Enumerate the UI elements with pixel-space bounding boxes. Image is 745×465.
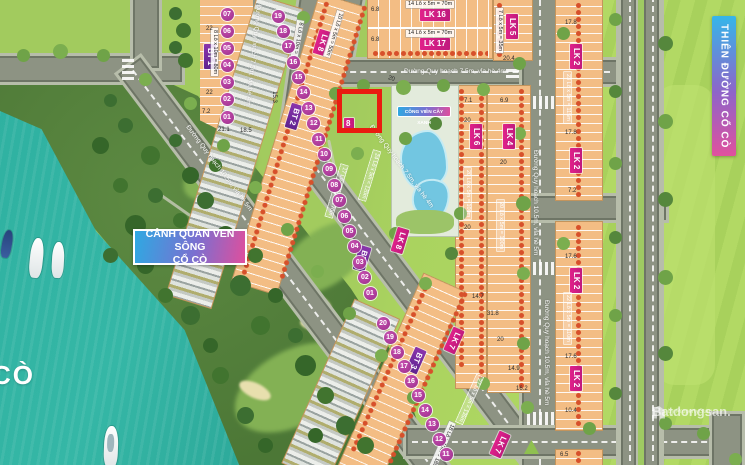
dim-lk6: 20 Lô x 5m = 100m bbox=[464, 168, 471, 219]
lot-markers bbox=[372, 50, 488, 57]
dim-lk4: 20 Lô x 5m = 100m bbox=[497, 200, 504, 251]
block-label-lk4: LK 4 bbox=[503, 124, 515, 149]
block-label-lk16: LK 16 bbox=[420, 9, 450, 21]
street-trees bbox=[0, 0, 11, 11]
block-label-lk2: LK 2 bbox=[570, 268, 582, 293]
dim-lk2-south: 22 Lô x 5m = 110m bbox=[564, 293, 571, 344]
dim-lk5: 7 Lô x 5m = 35m bbox=[496, 8, 503, 53]
master-plan-map: CÒ bbox=[0, 0, 745, 465]
lot-markers bbox=[575, 224, 582, 426]
yacht bbox=[103, 426, 118, 465]
yacht-deck bbox=[107, 434, 115, 452]
block-label-lk2: LK 2 bbox=[570, 44, 582, 69]
block-label-lk2: LK 2 bbox=[570, 366, 582, 391]
green-park-label: CÔNG VIÊN CÂY XANH bbox=[397, 106, 451, 117]
road-name: Đường Quy hoạch 10.5m, vỉa hè 5m bbox=[543, 300, 550, 405]
riverside-landscape-banner: CẢNH QUAN VEN SÔNG CỔ CÒ bbox=[133, 229, 247, 265]
avenue-lane-east bbox=[644, 0, 659, 465]
block-label-lk17: LK 17 bbox=[420, 38, 450, 50]
road-bottom-right-vertical bbox=[714, 416, 740, 465]
grass-patch bbox=[655, 85, 715, 385]
dim-lk17: 14 Lô x 5m = 70m bbox=[406, 30, 454, 37]
crosswalk bbox=[122, 59, 134, 80]
road-name: Đường Quy hoạch 7.5m, vỉa hè 4m bbox=[404, 68, 506, 75]
block-label-lk2: LK 2 bbox=[570, 148, 582, 173]
dim-lk8-mid: 24 Lô x 5m = 120m bbox=[359, 150, 381, 201]
avenue-lane-west bbox=[621, 0, 636, 465]
dim-bt1: 8 Lô x 10m = 80m bbox=[211, 28, 218, 76]
highlighted-lot-box[interactable] bbox=[337, 89, 382, 133]
dim-lk2-north: 23 Lô x 5m = 115m bbox=[564, 72, 571, 123]
paradise-co-co-banner: THIÊN ĐƯỜNG CỔ CÒ bbox=[712, 16, 736, 156]
block-divider bbox=[368, 27, 492, 29]
road-name: Đường Quy hoạch 10.5m, vỉa hè 5m bbox=[532, 150, 539, 255]
lot-number-badge: 14 bbox=[419, 404, 432, 417]
banner-line1: CẢNH QUAN VEN SÔNG bbox=[135, 228, 245, 254]
road-north-stub bbox=[135, 0, 157, 66]
crosswalk bbox=[527, 96, 554, 109]
lot-markers bbox=[458, 88, 465, 368]
crosswalk bbox=[506, 66, 519, 78]
crosswalk bbox=[527, 412, 554, 425]
grand-avenue bbox=[616, 0, 664, 465]
crosswalk bbox=[527, 262, 554, 275]
lot-number-badge: 02 bbox=[358, 271, 371, 284]
lot-markers bbox=[575, 450, 582, 464]
lot-markers bbox=[518, 88, 525, 388]
dim-lk16: 14 Lô x 5m = 70m bbox=[406, 1, 454, 8]
lot-number-badge: 01 bbox=[364, 287, 377, 300]
river-name-text: CÒ bbox=[0, 360, 35, 391]
block-label-lk5: LK 5 bbox=[506, 14, 518, 39]
banner-line2: CỔ CÒ bbox=[135, 254, 245, 267]
watermark-sub: by PropertyGuru bbox=[668, 406, 712, 418]
block-label-lk6: LK 6 bbox=[470, 124, 482, 149]
